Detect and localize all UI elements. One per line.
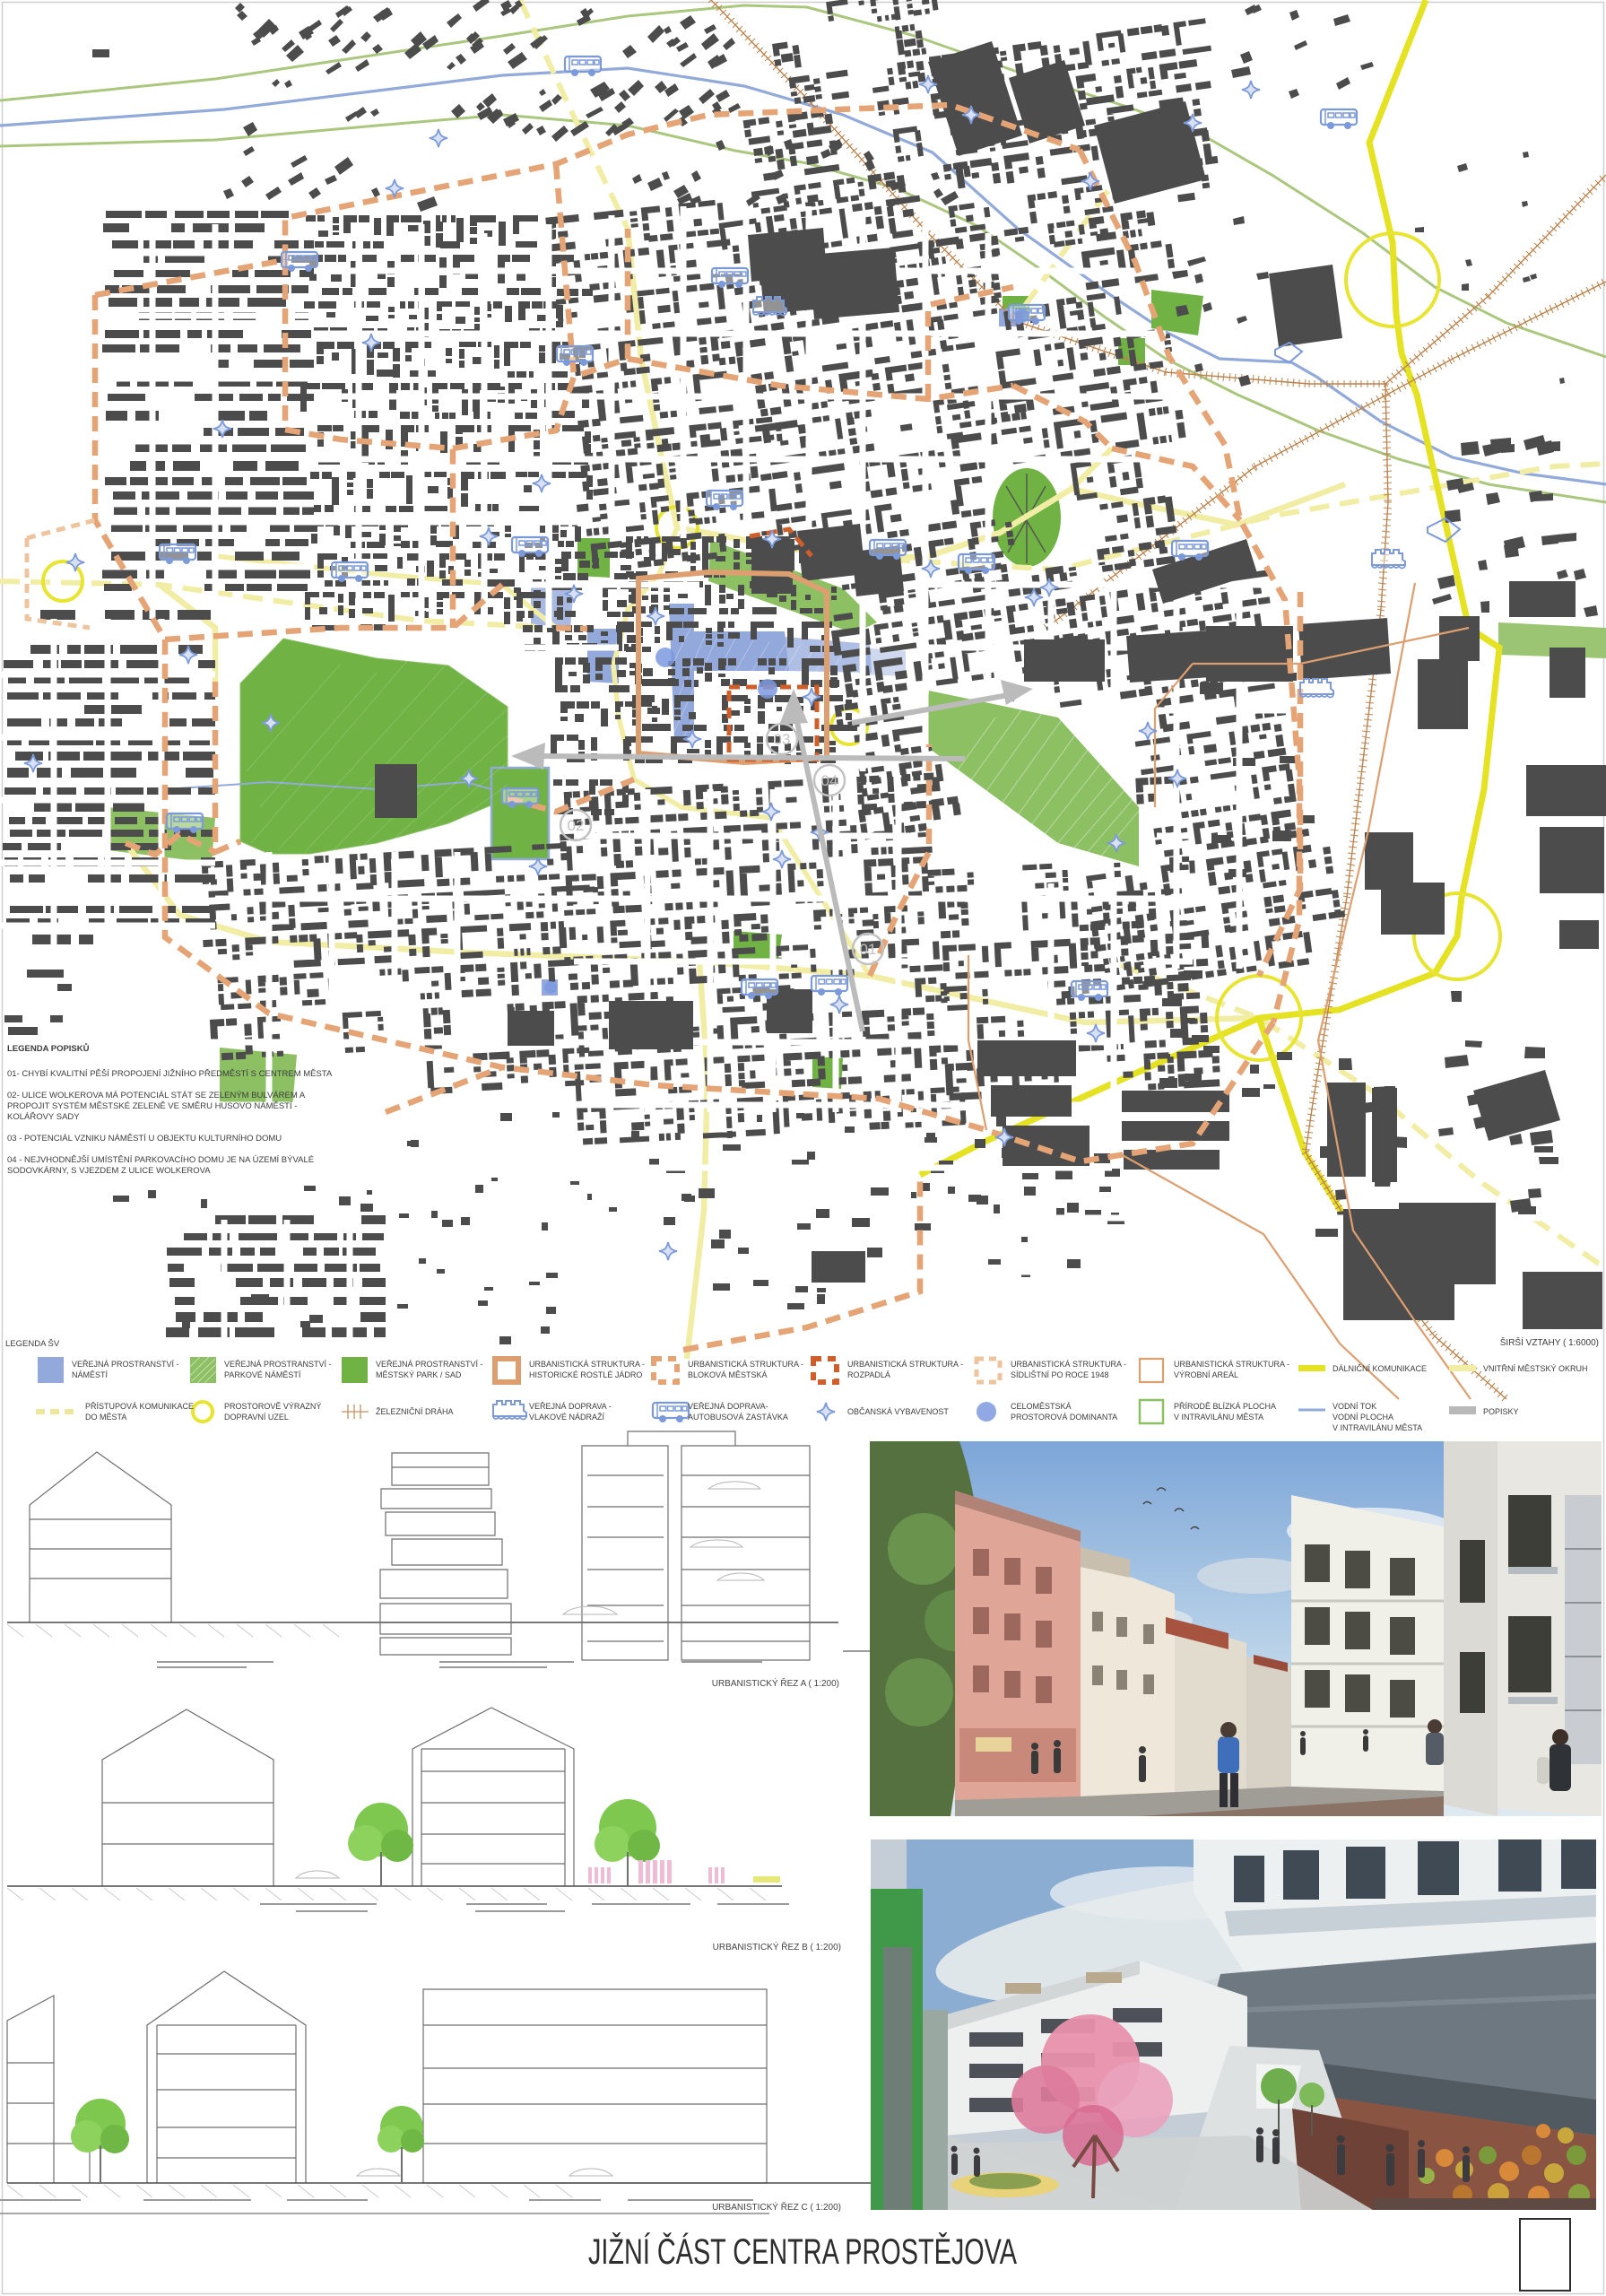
svg-text:VEŘEJNÁ PROSTRANSTVÍ -: VEŘEJNÁ PROSTRANSTVÍ - — [376, 1360, 483, 1369]
svg-text:DÁLNIČNÍ KOMUNIKACE: DÁLNIČNÍ KOMUNIKACE — [1333, 1364, 1427, 1373]
svg-text:PROSTOROVĚ VÝRAZNÝ: PROSTOROVĚ VÝRAZNÝ — [224, 1402, 321, 1411]
svg-text:VNITŘNÍ MĚSTSKÝ OKRUH: VNITŘNÍ MĚSTSKÝ OKRUH — [1483, 1364, 1588, 1373]
svg-text:02- ULICE WOLKEROVA MÁ POTENCI: 02- ULICE WOLKEROVA MÁ POTENCIÁL STÁT SE… — [7, 1091, 306, 1100]
svg-text:03: 03 — [774, 731, 791, 748]
svg-text:JIŽNÍ ČÁST CENTRA PROSTĚJOVA: JIŽNÍ ČÁST CENTRA PROSTĚJOVA — [588, 2231, 1017, 2272]
svg-text:URBANISTICKÁ STRUKTURA -: URBANISTICKÁ STRUKTURA - — [529, 1360, 645, 1369]
svg-text:DO MĚSTA: DO MĚSTA — [85, 1413, 126, 1422]
svg-text:V INTRAVILÁNU MĚSTA: V INTRAVILÁNU MĚSTA — [1333, 1423, 1422, 1432]
svg-text:LEGENDA POPISKŮ: LEGENDA POPISKŮ — [7, 1043, 90, 1054]
svg-text:VEŘEJNÁ DOPRAVA-: VEŘEJNÁ DOPRAVA- — [688, 1402, 768, 1411]
svg-text:PARKOVÉ NÁMĚSTÍ: PARKOVÉ NÁMĚSTÍ — [224, 1370, 301, 1379]
svg-text:MĚSTSKÝ PARK / SAD: MĚSTSKÝ PARK / SAD — [376, 1370, 462, 1379]
svg-text:URBANISTICKÝ ŘEZ C ( 1:200): URBANISTICKÝ ŘEZ C ( 1:200) — [712, 2201, 841, 2213]
svg-text:KOLÁŘOVY SADY: KOLÁŘOVY SADY — [7, 1112, 80, 1122]
svg-text:URBANISTICKÁ STRUKTURA -: URBANISTICKÁ STRUKTURA - — [847, 1360, 963, 1369]
svg-text:BLOKOVÁ MĚSTSKÁ: BLOKOVÁ MĚSTSKÁ — [688, 1370, 768, 1379]
svg-text:04 - NEJVHODNĚJŠÍ UMÍSTĚNÍ PAR: 04 - NEJVHODNĚJŠÍ UMÍSTĚNÍ PARKOVACÍHO D… — [7, 1155, 314, 1165]
svg-text:03 - POTENCIÁL VZNIKU NÁMĚSTÍ: 03 - POTENCIÁL VZNIKU NÁMĚSTÍ U OBJEKTU … — [7, 1134, 282, 1144]
svg-text:SODOVKÁRNY, S VJEZDEM Z ULICE: SODOVKÁRNY, S VJEZDEM Z ULICE WOLKEROVA — [7, 1166, 211, 1176]
svg-text:04: 04 — [821, 772, 838, 789]
svg-text:SÍDLIŠTNÍ PO ROCE 1948: SÍDLIŠTNÍ PO ROCE 1948 — [1011, 1370, 1109, 1379]
svg-text:CELOMĚSTSKÁ: CELOMĚSTSKÁ — [1011, 1402, 1072, 1411]
svg-text:PROSTOROVÁ DOMINANTA: PROSTOROVÁ DOMINANTA — [1011, 1413, 1117, 1422]
svg-text:01- CHYBÍ KVALITNÍ PĚŠÍ PROPOJ: 01- CHYBÍ KVALITNÍ PĚŠÍ PROPOJENÍ JIŽNÍH… — [7, 1069, 333, 1079]
svg-text:VÝROBNÍ AREÁL: VÝROBNÍ AREÁL — [1174, 1370, 1238, 1379]
svg-text:02: 02 — [568, 817, 585, 834]
svg-text:LEGENDA ŠV: LEGENDA ŠV — [5, 1339, 60, 1349]
svg-text:PROPOJIT SYSTÉM MĚSTSKÉ ZELENĚ: PROPOJIT SYSTÉM MĚSTSKÉ ZELENĚ VE SMĚRU … — [7, 1101, 297, 1111]
svg-text:URBANISTICKÝ ŘEZ B ( 1:200): URBANISTICKÝ ŘEZ B ( 1:200) — [713, 1941, 841, 1952]
svg-text:DOPRAVNÍ UZEL: DOPRAVNÍ UZEL — [224, 1413, 289, 1422]
svg-text:OBČANSKÁ VYBAVENOST: OBČANSKÁ VYBAVENOST — [847, 1407, 949, 1416]
svg-text:URBANISTICKÁ STRUKTURA -: URBANISTICKÁ STRUKTURA - — [1174, 1360, 1289, 1369]
svg-text:VEŘEJNÁ PROSTRANSTVÍ -: VEŘEJNÁ PROSTRANSTVÍ - — [72, 1360, 179, 1369]
svg-text:POPISKY: POPISKY — [1483, 1407, 1519, 1416]
svg-text:URBANISTICKÝ ŘEZ A ( 1:200): URBANISTICKÝ ŘEZ A ( 1:200) — [712, 1677, 839, 1689]
svg-text:VEŘEJNÁ PROSTRANSTVÍ -: VEŘEJNÁ PROSTRANSTVÍ - — [224, 1360, 332, 1369]
svg-text:URBANISTICKÁ STRUKTURA -: URBANISTICKÁ STRUKTURA - — [1011, 1360, 1126, 1369]
svg-text:VODNÍ TOK: VODNÍ TOK — [1333, 1402, 1376, 1411]
svg-text:NÁMĚSTÍ: NÁMĚSTÍ — [72, 1370, 109, 1379]
svg-text:ROZPADLÁ: ROZPADLÁ — [847, 1370, 890, 1379]
svg-text:PŘÍSTUPOVÁ KOMUNIKACE: PŘÍSTUPOVÁ KOMUNIKACE — [85, 1402, 194, 1411]
svg-text:ŠIRŠÍ VZTAHY ( 1:6000): ŠIRŠÍ VZTAHY ( 1:6000) — [1500, 1336, 1599, 1348]
svg-text:ŽELEZNIČNÍ DRÁHA: ŽELEZNIČNÍ DRÁHA — [376, 1407, 454, 1416]
svg-text:01: 01 — [860, 941, 877, 958]
svg-text:VEŘEJNÁ DOPRAVA -: VEŘEJNÁ DOPRAVA - — [529, 1402, 612, 1411]
svg-text:PŘÍRODĚ BLÍZKÁ PLOCHA: PŘÍRODĚ BLÍZKÁ PLOCHA — [1174, 1402, 1276, 1411]
svg-text:VODNÍ PLOCHA: VODNÍ PLOCHA — [1333, 1413, 1393, 1422]
svg-text:URBANISTICKÁ STRUKTURA -: URBANISTICKÁ STRUKTURA - — [688, 1360, 803, 1369]
svg-text:VLAKOVÉ NÁDRAŽÍ: VLAKOVÉ NÁDRAŽÍ — [529, 1413, 605, 1422]
svg-text:AUTOBUSOVÁ ZASTÁVKA: AUTOBUSOVÁ ZASTÁVKA — [688, 1413, 788, 1422]
svg-text:V INTRAVILÁNU MĚSTA: V INTRAVILÁNU MĚSTA — [1174, 1413, 1263, 1422]
svg-text:HISTORICKÉ ROSTLÉ JÁDRO: HISTORICKÉ ROSTLÉ JÁDRO — [529, 1370, 642, 1379]
